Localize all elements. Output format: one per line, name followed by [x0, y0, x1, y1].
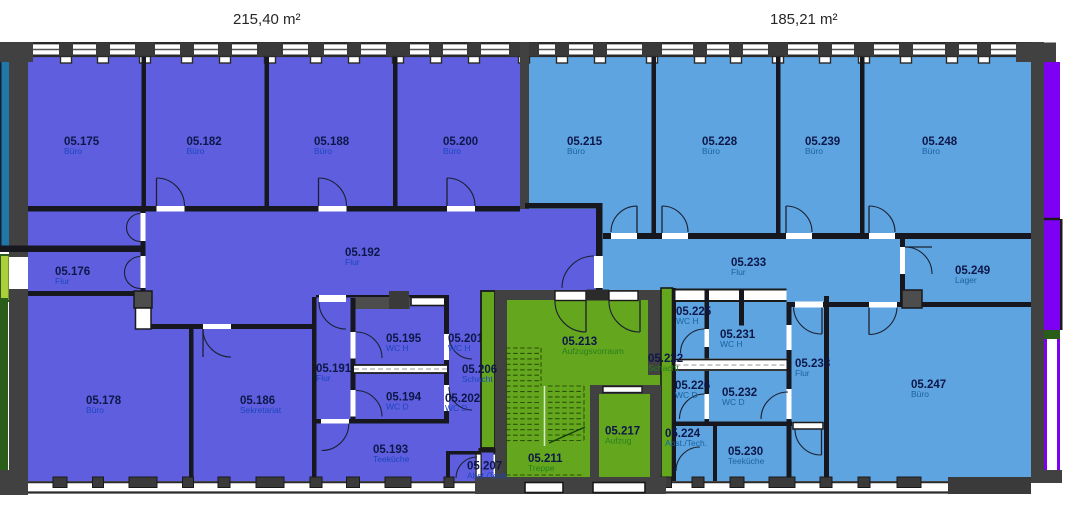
svg-text:Büro: Büro: [911, 389, 929, 399]
svg-text:Teeküche: Teeküche: [373, 454, 410, 464]
svg-text:Lager: Lager: [955, 275, 977, 285]
svg-text:Büro: Büro: [805, 146, 823, 156]
svg-text:Flur: Flur: [316, 373, 331, 383]
svg-text:WC H: WC H: [448, 343, 471, 353]
svg-text:Flur: Flur: [795, 368, 810, 378]
svg-text:Schacht: Schacht: [462, 374, 493, 384]
svg-text:Büro: Büro: [64, 146, 82, 156]
svg-text:Büro: Büro: [922, 146, 940, 156]
svg-text:Büro: Büro: [86, 405, 104, 415]
svg-text:WC H: WC H: [720, 339, 743, 349]
svg-text:Büro: Büro: [187, 146, 205, 156]
svg-text:215,40 m²: 215,40 m²: [233, 11, 301, 28]
svg-text:185,21 m²: 185,21 m²: [770, 11, 838, 28]
svg-text:WC D: WC D: [386, 402, 409, 412]
svg-text:Aufzugsvorraum: Aufzugsvorraum: [562, 346, 624, 356]
svg-text:WC H: WC H: [386, 343, 409, 353]
svg-text:Büro: Büro: [567, 146, 585, 156]
svg-text:Schacht: Schacht: [648, 363, 679, 373]
svg-text:WC D: WC D: [445, 403, 468, 413]
svg-text:Büro: Büro: [702, 146, 720, 156]
svg-text:WC D: WC D: [722, 397, 745, 407]
svg-text:Teeküche: Teeküche: [728, 456, 765, 466]
svg-text:Flur: Flur: [55, 276, 70, 286]
svg-text:Flur: Flur: [731, 267, 746, 277]
svg-text:Treppe: Treppe: [528, 463, 555, 473]
svg-text:WC D: WC D: [675, 390, 698, 400]
svg-text:Abst./Tech.: Abst./Tech.: [665, 438, 707, 448]
svg-text:Flur: Flur: [345, 257, 360, 267]
svg-text:Abst./Tech.: Abst./Tech.: [467, 471, 509, 481]
svg-text:Aufzug: Aufzug: [605, 436, 632, 446]
svg-text:WC H: WC H: [676, 316, 699, 326]
svg-text:Sekretariat: Sekretariat: [240, 405, 282, 415]
svg-text:Büro: Büro: [314, 146, 332, 156]
svg-text:Büro: Büro: [443, 146, 461, 156]
